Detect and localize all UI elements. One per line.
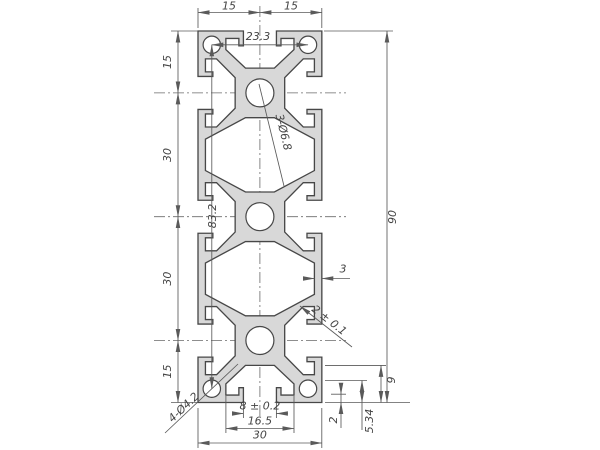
dim-text-30: 30 — [253, 429, 267, 442]
dim-corner-hole-span: 83.2 — [206, 45, 219, 389]
dim-text-83-2: 83.2 — [206, 204, 219, 229]
dim-text-23-3: 23.3 — [246, 30, 271, 43]
dim-text-left-30a: 30 — [161, 148, 174, 162]
leader-text-4-d4-2: 4-Ø4.2 — [166, 390, 202, 425]
dim-text-9: 9 — [385, 377, 398, 384]
center-hole-3 — [246, 327, 274, 355]
dim-text-left-15a: 15 — [161, 55, 174, 69]
dim-text-8-tol: 8 ± 0.2 — [240, 400, 281, 413]
dim-text-left-15b: 15 — [161, 365, 174, 379]
dim-text-5-34: 5.34 — [363, 409, 376, 434]
dim-text-90: 90 — [386, 210, 399, 224]
dim-overall-height: 90 — [324, 31, 410, 403]
dim-text-3: 3 — [340, 263, 347, 276]
dim-web-thickness: 3 — [304, 263, 350, 279]
dim-text-top-15-left: 15 — [222, 0, 236, 13]
dim-text-left-30b: 30 — [161, 272, 174, 286]
center-hole-1 — [246, 79, 274, 107]
technical-drawing: 15 15 23.3 15 30 30 15 83.2 90 — [0, 0, 600, 450]
corner-hole-bottom-right — [299, 380, 316, 397]
center-hole-2 — [246, 203, 274, 231]
dim-text-top-15-right: 15 — [284, 0, 298, 13]
dim-text-2: 2 — [327, 417, 340, 424]
drawing-canvas: 15 15 23.3 15 30 30 15 83.2 90 — [0, 0, 600, 450]
dim-text-16-5: 16.5 — [248, 415, 273, 428]
